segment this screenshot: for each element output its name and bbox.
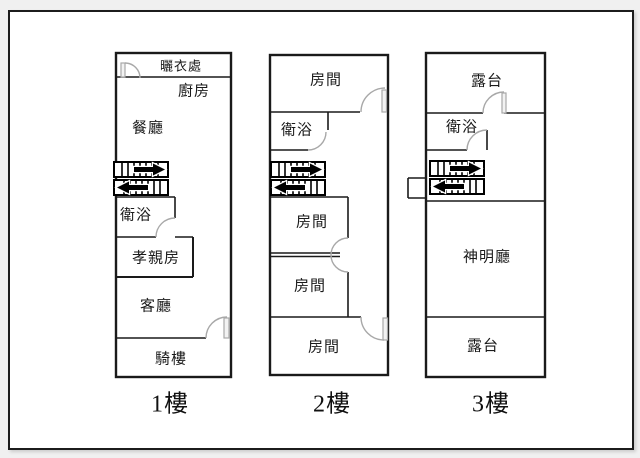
stairs-down-arrow-icon xyxy=(430,179,484,194)
room-label-terrace-top: 露台 xyxy=(471,70,503,91)
room-label-parents-room: 孝親房 xyxy=(132,247,180,268)
door-leaf xyxy=(121,63,125,77)
stairs-down-arrow-icon xyxy=(271,180,325,195)
door-leaf xyxy=(502,93,506,113)
room-label-shrine-hall: 神明廳 xyxy=(463,246,511,267)
floor-3-caption: 3樓 xyxy=(472,384,510,419)
floor-2-caption: 2樓 xyxy=(313,384,351,419)
room-label-bathroom-3f: 衛浴 xyxy=(446,116,478,137)
door-arc xyxy=(331,238,348,272)
floor-3-walls xyxy=(408,53,545,377)
door-leaf xyxy=(383,318,388,340)
door-arc xyxy=(361,88,385,112)
floor-2-walls xyxy=(270,55,388,375)
door-arc xyxy=(156,218,175,237)
door-arc xyxy=(483,92,504,113)
room-label-terrace-bottom: 露台 xyxy=(467,335,499,356)
room-label-dining-room: 餐廳 xyxy=(132,117,164,138)
stairs-down-arrow-icon xyxy=(114,180,168,195)
room-label-kitchen: 廚房 xyxy=(178,80,210,101)
room-label-bedroom-2f-mid2: 房間 xyxy=(294,275,326,296)
door-leaf xyxy=(382,90,387,112)
room-label-bedroom-2f-bottom: 房間 xyxy=(308,336,340,357)
room-label-living-room: 客廳 xyxy=(140,295,172,316)
stairs-up-arrow-icon xyxy=(271,162,325,177)
floor-1-caption: 1樓 xyxy=(151,384,189,419)
room-label-bedroom-2f-mid1: 房間 xyxy=(296,211,328,232)
room-label-arcade: 騎樓 xyxy=(155,348,187,369)
stairs-up-arrow-icon xyxy=(430,161,484,176)
door-arc xyxy=(361,317,384,340)
room-label-bathroom-2f: 衛浴 xyxy=(281,119,313,140)
stairs-up-arrow-icon xyxy=(114,162,168,177)
room-label-bedroom-2f-top: 房間 xyxy=(310,69,342,90)
door-leaf xyxy=(224,318,229,338)
door-arc xyxy=(125,63,140,78)
room-label-drying-area: 曬衣處 xyxy=(160,56,202,75)
room-label-bathroom-1f: 衛浴 xyxy=(120,204,152,225)
